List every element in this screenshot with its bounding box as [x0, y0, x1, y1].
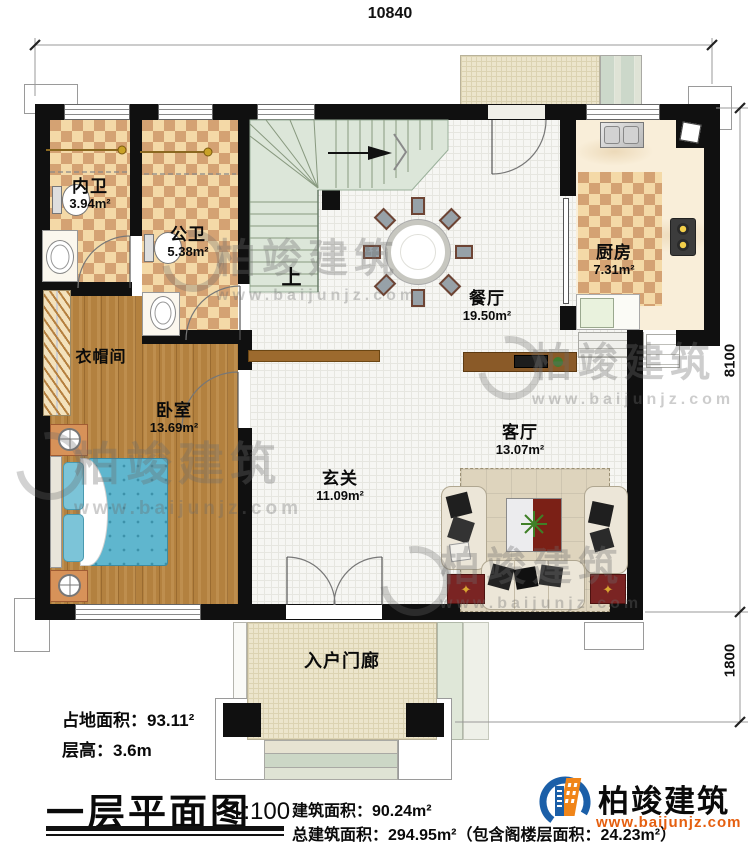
watermark-2: 柏竣建筑 www.baijunjz.com	[216, 226, 418, 305]
label-stair-up: 上	[278, 268, 306, 288]
area-dining: 19.50m²	[451, 309, 523, 322]
watermark-site: www.baijunjz.com	[532, 391, 734, 409]
area-foyer: 11.09m²	[304, 489, 376, 502]
watermark-site: www.baijunjz.com	[440, 595, 642, 613]
building-area-text: 建筑面积：90.24m²	[292, 797, 432, 821]
label-public-bath: 公卫	[158, 226, 218, 243]
label-foyer: 玄关	[310, 470, 370, 487]
title-underline-thick	[46, 826, 284, 831]
floor-height-text: 层高：3.6m	[62, 736, 152, 761]
area-living: 13.07m²	[484, 443, 556, 456]
watermark-1: 柏竣建筑 www.baijunjz.com	[74, 428, 302, 520]
area-public-bath: 5.38m²	[156, 245, 220, 258]
watermark-4: 柏竣建筑 www.baijunjz.com	[440, 534, 642, 613]
area-inner-bath: 3.94m²	[58, 197, 122, 210]
area-bedroom: 13.69m²	[138, 421, 210, 434]
label-porch: 入户门廊	[292, 652, 392, 670]
watermark-text: 柏竣建筑	[216, 226, 418, 284]
label-cloakroom: 衣帽间	[68, 350, 134, 366]
watermark-site: www.baijunjz.com	[74, 498, 302, 520]
watermark-text: 柏竣建筑	[532, 330, 734, 388]
plan-scale: 1:100	[230, 798, 290, 826]
brand-logo-icon	[538, 768, 596, 832]
land-area-text: 占地面积：93.11²	[62, 706, 194, 731]
label-kitchen: 厨房	[584, 244, 644, 261]
dim-right-upper: 8100	[722, 337, 739, 385]
title-underline-thin	[46, 834, 284, 836]
area-kitchen: 7.31m²	[580, 263, 648, 276]
watermark-text: 柏竣建筑	[440, 534, 642, 592]
label-living: 客厅	[490, 424, 550, 441]
label-bedroom: 卧室	[144, 402, 204, 419]
floor-plan-canvas: ✦ ✦	[0, 0, 750, 844]
label-inner-bath: 内卫	[60, 178, 120, 195]
watermark-site: www.baijunjz.com	[216, 287, 418, 305]
watermark-text: 柏竣建筑	[74, 428, 302, 494]
dim-right-lower: 1800	[722, 637, 739, 685]
dim-top: 10840	[335, 5, 445, 23]
watermark-3: 柏竣建筑 www.baijunjz.com	[532, 330, 734, 409]
brand-site: www.baijunjz.com	[596, 814, 741, 831]
label-dining: 餐厅	[455, 290, 519, 307]
